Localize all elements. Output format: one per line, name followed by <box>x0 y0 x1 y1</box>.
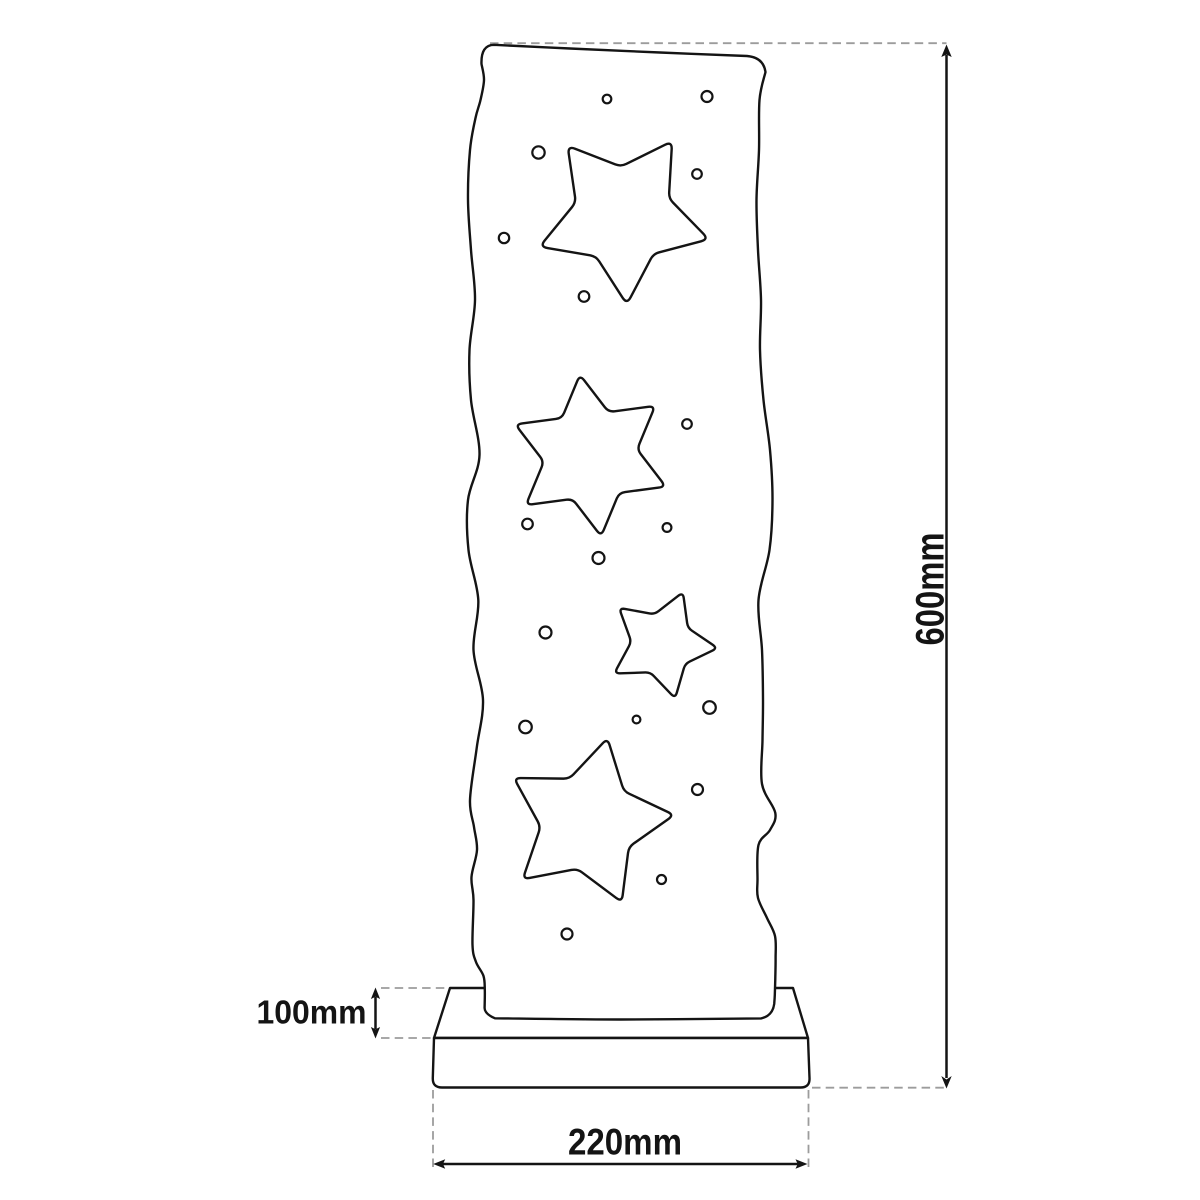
svg-text:100mm: 100mm <box>257 994 367 1031</box>
svg-text:220mm: 220mm <box>568 1122 682 1163</box>
svg-text:600mm: 600mm <box>909 533 953 646</box>
